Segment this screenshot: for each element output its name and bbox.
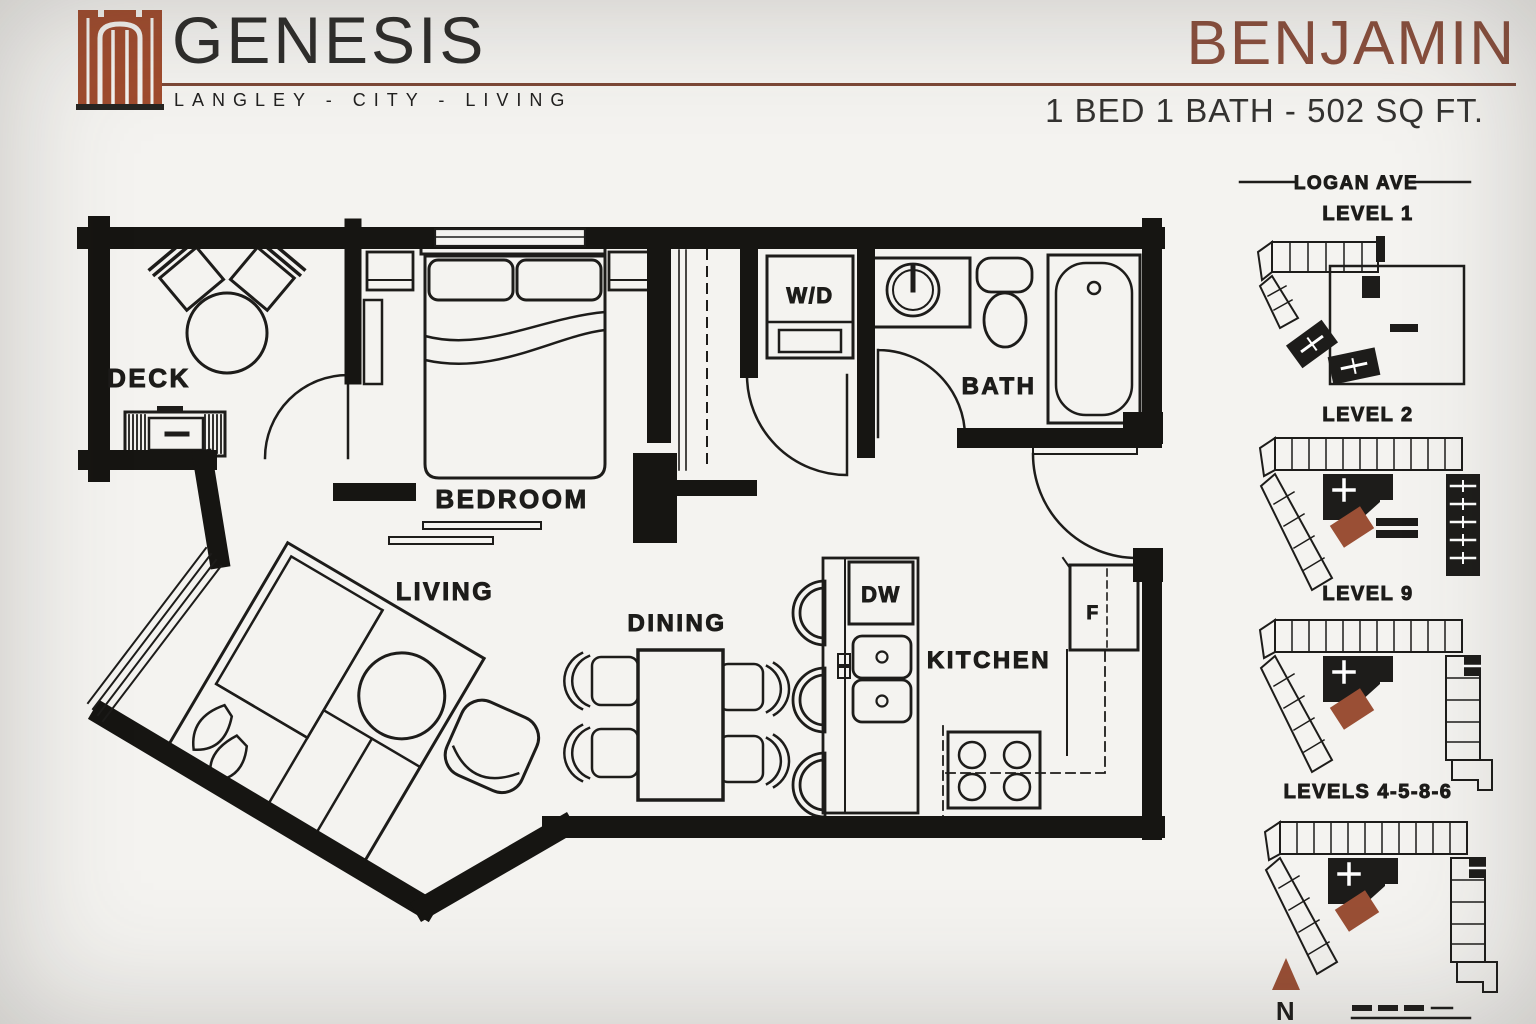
- room-label-dining: DINING: [628, 610, 727, 637]
- deck-bench-icon: [125, 406, 225, 456]
- keyplan-label-levels-4586: LEVELS 4-5-8-6: [1284, 781, 1453, 803]
- keyplan-levels-4-5-8-6: [1265, 822, 1497, 992]
- keyplan-label-level-1: LEVEL 1: [1322, 203, 1413, 225]
- label-washer-dryer: W/D: [786, 283, 833, 308]
- plan-specs: 1 BED 1 BATH - 502 SQ FT.: [1045, 92, 1484, 130]
- bath-sink-icon: [868, 258, 970, 327]
- plan-title: BENJAMIN: [1187, 8, 1516, 79]
- keyplan-level-2: [1260, 438, 1480, 590]
- nightstand-icon: [609, 252, 651, 290]
- north-arrow-icon: N: [1272, 958, 1300, 1024]
- genesis-logo-icon: [74, 8, 166, 110]
- room-label-kitchen: KITCHEN: [927, 647, 1051, 674]
- deck-table-icon: [187, 293, 267, 373]
- kitchen-sink-icon: [838, 636, 911, 722]
- keyplan-level-9: [1260, 620, 1492, 790]
- keyplan-column: LOGAN AVE LEVEL 1 LEVEL 2: [1190, 160, 1535, 1024]
- room-label-bath: BATH: [962, 373, 1037, 400]
- floorplan-sheet: GENESIS LANGLEY - CITY - LIVING BENJAMIN…: [0, 0, 1536, 1024]
- sliding-door-icon: [389, 522, 541, 544]
- label-dishwasher: DW: [861, 582, 901, 607]
- brand-tagline: LANGLEY - CITY - LIVING: [174, 90, 572, 111]
- toilet-icon: [977, 258, 1032, 347]
- keyplan-label-level-9: LEVEL 9: [1322, 583, 1413, 605]
- room-label-deck: DECK: [107, 363, 191, 393]
- fridge-icon: [1063, 558, 1138, 650]
- street-label: LOGAN AVE: [1294, 173, 1418, 194]
- bar-stool-icon: [793, 581, 825, 817]
- bathtub-icon: [1048, 255, 1140, 423]
- brand-name: GENESIS: [172, 2, 486, 78]
- room-label-living: LIVING: [396, 578, 494, 606]
- north-label: N: [1276, 996, 1296, 1024]
- dining-table-icon: [638, 650, 723, 800]
- nightstand-icon: [367, 252, 413, 290]
- closet-icon: [679, 250, 707, 470]
- keyplan-level-1: [1258, 236, 1464, 385]
- dresser-icon: [364, 300, 382, 384]
- brand-rule: [162, 83, 1516, 86]
- label-fridge: F: [1086, 603, 1099, 624]
- bed-icon: [421, 240, 605, 478]
- room-label-bedroom: BEDROOM: [435, 484, 588, 514]
- scale-bar: [1352, 1005, 1470, 1018]
- floor-plan: DECK BEDROOM BATH LIVING DINING KITCHEN …: [55, 170, 1165, 970]
- keyplan-label-level-2: LEVEL 2: [1322, 404, 1413, 426]
